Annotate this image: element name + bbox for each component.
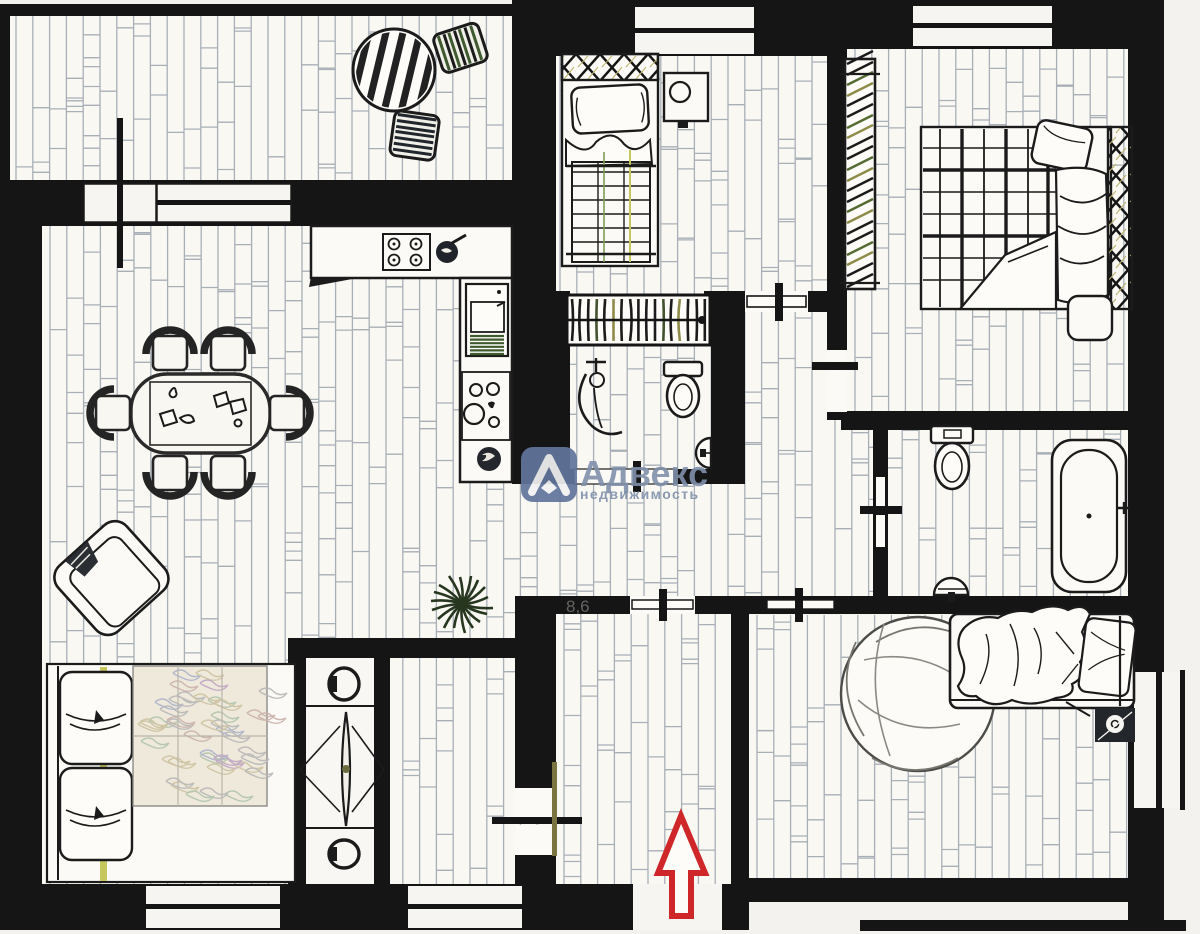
svg-text:8,6: 8,6	[566, 597, 590, 616]
svg-text:недвижимость: недвижимость	[580, 486, 699, 502]
